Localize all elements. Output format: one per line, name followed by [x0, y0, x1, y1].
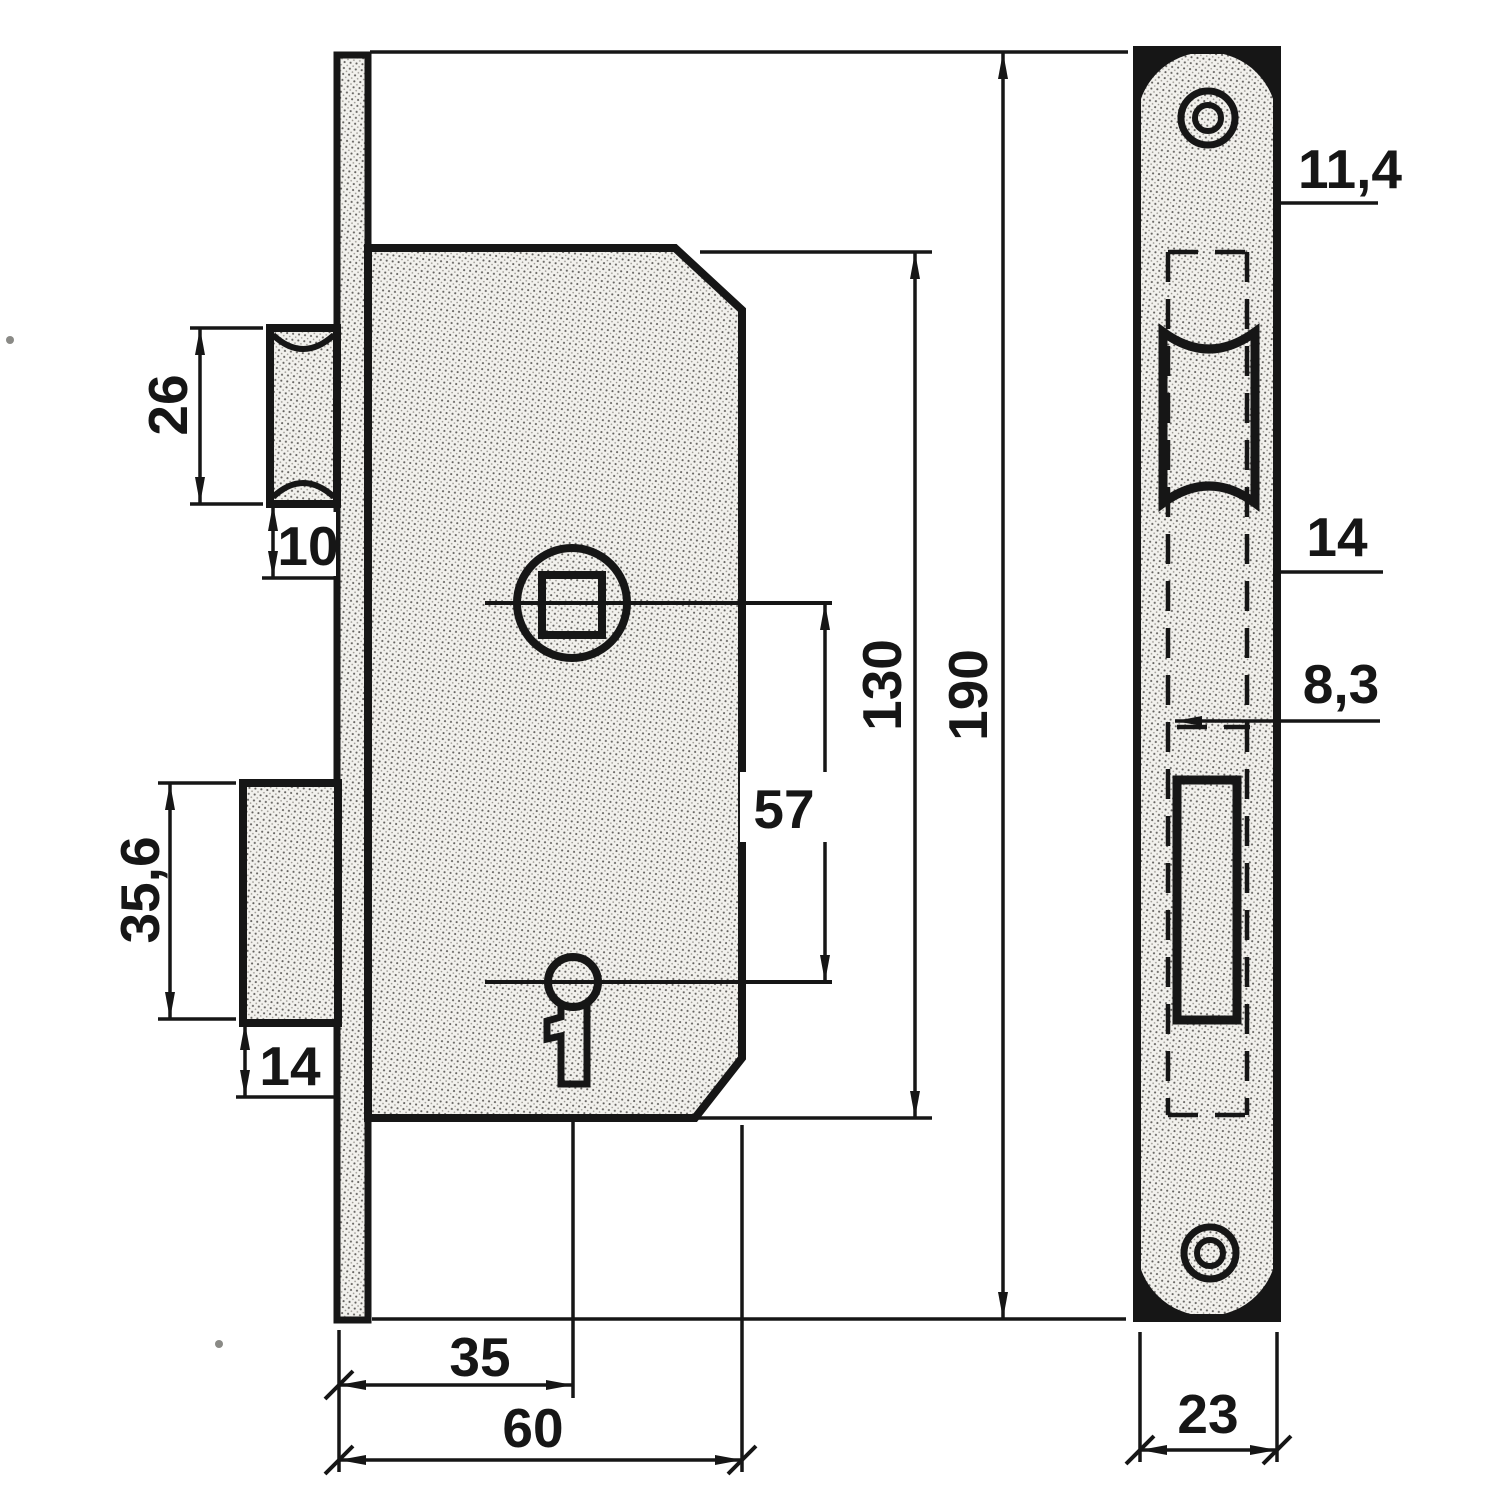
scan-speck [6, 336, 14, 344]
dim-label-14-right: 14 [1306, 506, 1368, 568]
dim-label-11-4: 11,4 [1298, 138, 1402, 200]
dim-latch-height: 26 [137, 328, 200, 504]
faceplate-front [1137, 50, 1277, 1318]
dim-follower-to-keyhole: 57 [740, 603, 832, 982]
dim-label-35: 35 [449, 1326, 510, 1388]
dim-label-60: 60 [502, 1397, 563, 1459]
callout-latch-cut: 14 [1277, 506, 1383, 572]
mortise-lock-technical-drawing: 26 10 35,6 14 57 130 190 [0, 0, 1500, 1500]
latch-cutout [1163, 332, 1255, 503]
dim-label-23: 23 [1177, 1383, 1238, 1445]
dim-latch-below: 10 [273, 504, 339, 578]
dim-case-height: 130 [851, 252, 915, 1118]
dim-label-14-left: 14 [259, 1035, 321, 1097]
dim-label-190: 190 [937, 649, 999, 741]
side-view: 26 10 35,6 14 57 130 190 [109, 52, 1128, 1474]
lock-case [368, 248, 742, 1118]
dim-plate-length: 190 [937, 52, 1003, 1319]
latch-bolt [270, 328, 337, 504]
drawing-page: 26 10 35,6 14 57 130 190 [0, 0, 1500, 1500]
dim-label-8-3: 8,3 [1303, 653, 1379, 715]
dim-label-10: 10 [277, 515, 338, 577]
dim-backset: 35 [325, 1326, 573, 1399]
dim-label-35-6: 35,6 [109, 836, 171, 943]
dim-case-depth: 60 [325, 1397, 756, 1474]
bolt-cutout [1177, 780, 1237, 1020]
dim-plate-width: 23 [1126, 1332, 1291, 1464]
dim-label-57: 57 [753, 778, 814, 840]
front-view: 11,4 14 8,3 23 [1126, 50, 1402, 1464]
dim-label-130: 130 [851, 639, 913, 731]
dead-bolt [243, 783, 338, 1023]
faceplate-edge [337, 55, 368, 1320]
dim-bolt-height: 35,6 [109, 783, 171, 1019]
callout-plate-top: 11,4 [1277, 138, 1402, 203]
dim-bolt-below: 14 [245, 1023, 332, 1097]
dim-label-26: 26 [137, 374, 199, 435]
scan-speck [215, 1340, 223, 1348]
